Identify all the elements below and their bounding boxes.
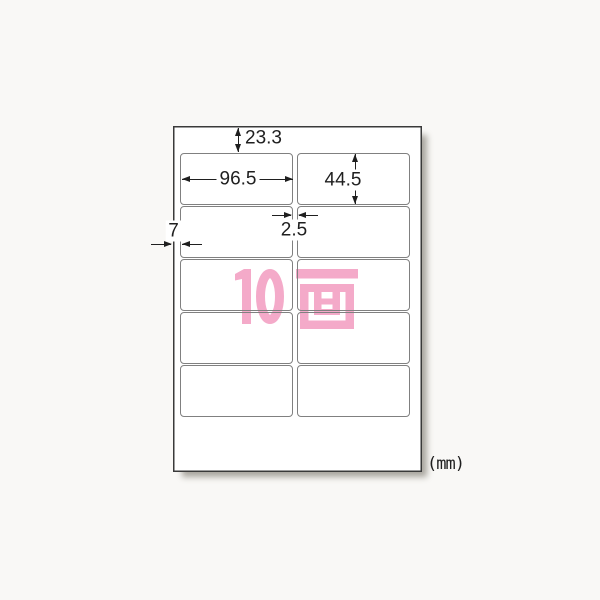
label-cell [297,259,410,311]
arrowhead-right-icon [284,212,292,218]
arrowhead-left-icon [182,176,190,182]
arrowhead-down-icon [352,196,358,204]
arrowhead-right-icon [285,176,293,182]
label-cell [180,259,293,311]
dim-value: 96.5 [217,169,260,190]
arrowhead-left-icon [182,241,190,247]
arrowhead-down-icon [235,144,241,152]
arrowhead-left-icon [298,212,306,218]
label-cell [297,365,410,417]
arrowhead-right-icon [164,241,172,247]
dim-value: 23.3 [245,129,282,148]
unit-note: (mm) [427,456,464,473]
dim-value: 2.5 [278,219,310,240]
label-sheet-diagram: 23.3 96.5 44.5 2.5 7 (mm) [0,0,600,600]
label-grid [0,0,600,600]
dim-value: 7 [165,221,182,242]
arrowhead-up-icon [352,154,358,162]
arrowhead-up-icon [235,128,241,136]
dim-value: 44.5 [322,169,365,190]
label-cell [180,365,293,417]
label-cell [180,312,293,364]
label-cell [297,312,410,364]
